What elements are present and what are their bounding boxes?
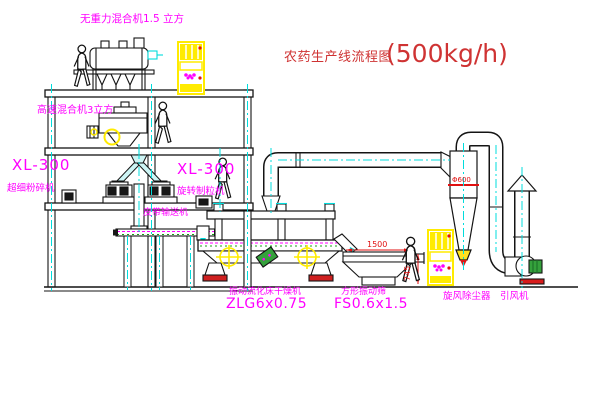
mill-unit-1: [103, 182, 135, 203]
dimension-sieve-length: 1500: [367, 241, 387, 249]
cad-flow-diagram: 农药生产线流程图 (500kg/h) 无重力混合机1.5 立方 高速混合机3立方…: [0, 0, 600, 403]
label-gravity-mixer: 无重力混合机1.5 立方: [80, 14, 184, 25]
person-figure: [74, 45, 90, 86]
diagram-title: 农药生产线流程图: [284, 51, 392, 64]
label-pulverizer-name: 超细粉碎机: [7, 184, 55, 194]
label-high-speed-mixer: 高速混合机3立方: [37, 106, 113, 116]
label-sieve-model: FS0.6x1.5: [334, 297, 408, 311]
label-dryer-model: ZLG6x0.75: [226, 297, 307, 311]
label-belt-conveyor: 皮带输送机: [143, 209, 188, 218]
ground-line: [44, 287, 578, 291]
induced-draft-fan: [505, 256, 544, 284]
person-figure: [155, 102, 171, 143]
control-cabinet-1: [178, 42, 204, 94]
mill-unit-2: [145, 182, 177, 203]
label-granulator-name: 旋转制粒机: [177, 187, 225, 197]
dimension-cyclone-dia: Φ600: [452, 177, 471, 184]
dimension-sieve-height: 745: [404, 266, 412, 281]
diagram-title-capacity: (500kg/h): [386, 41, 508, 66]
label-pulverizer-model: XL-300: [12, 158, 70, 173]
dryer-exhaust-duct: [262, 152, 453, 211]
label-cyclone: 旋风除尘器: [443, 292, 491, 302]
control-cabinet-2: [428, 230, 453, 285]
fluid-bed-dryer: [197, 204, 342, 282]
label-fan: 引风机: [500, 292, 529, 302]
label-granulator-model: XL-300: [177, 162, 235, 177]
